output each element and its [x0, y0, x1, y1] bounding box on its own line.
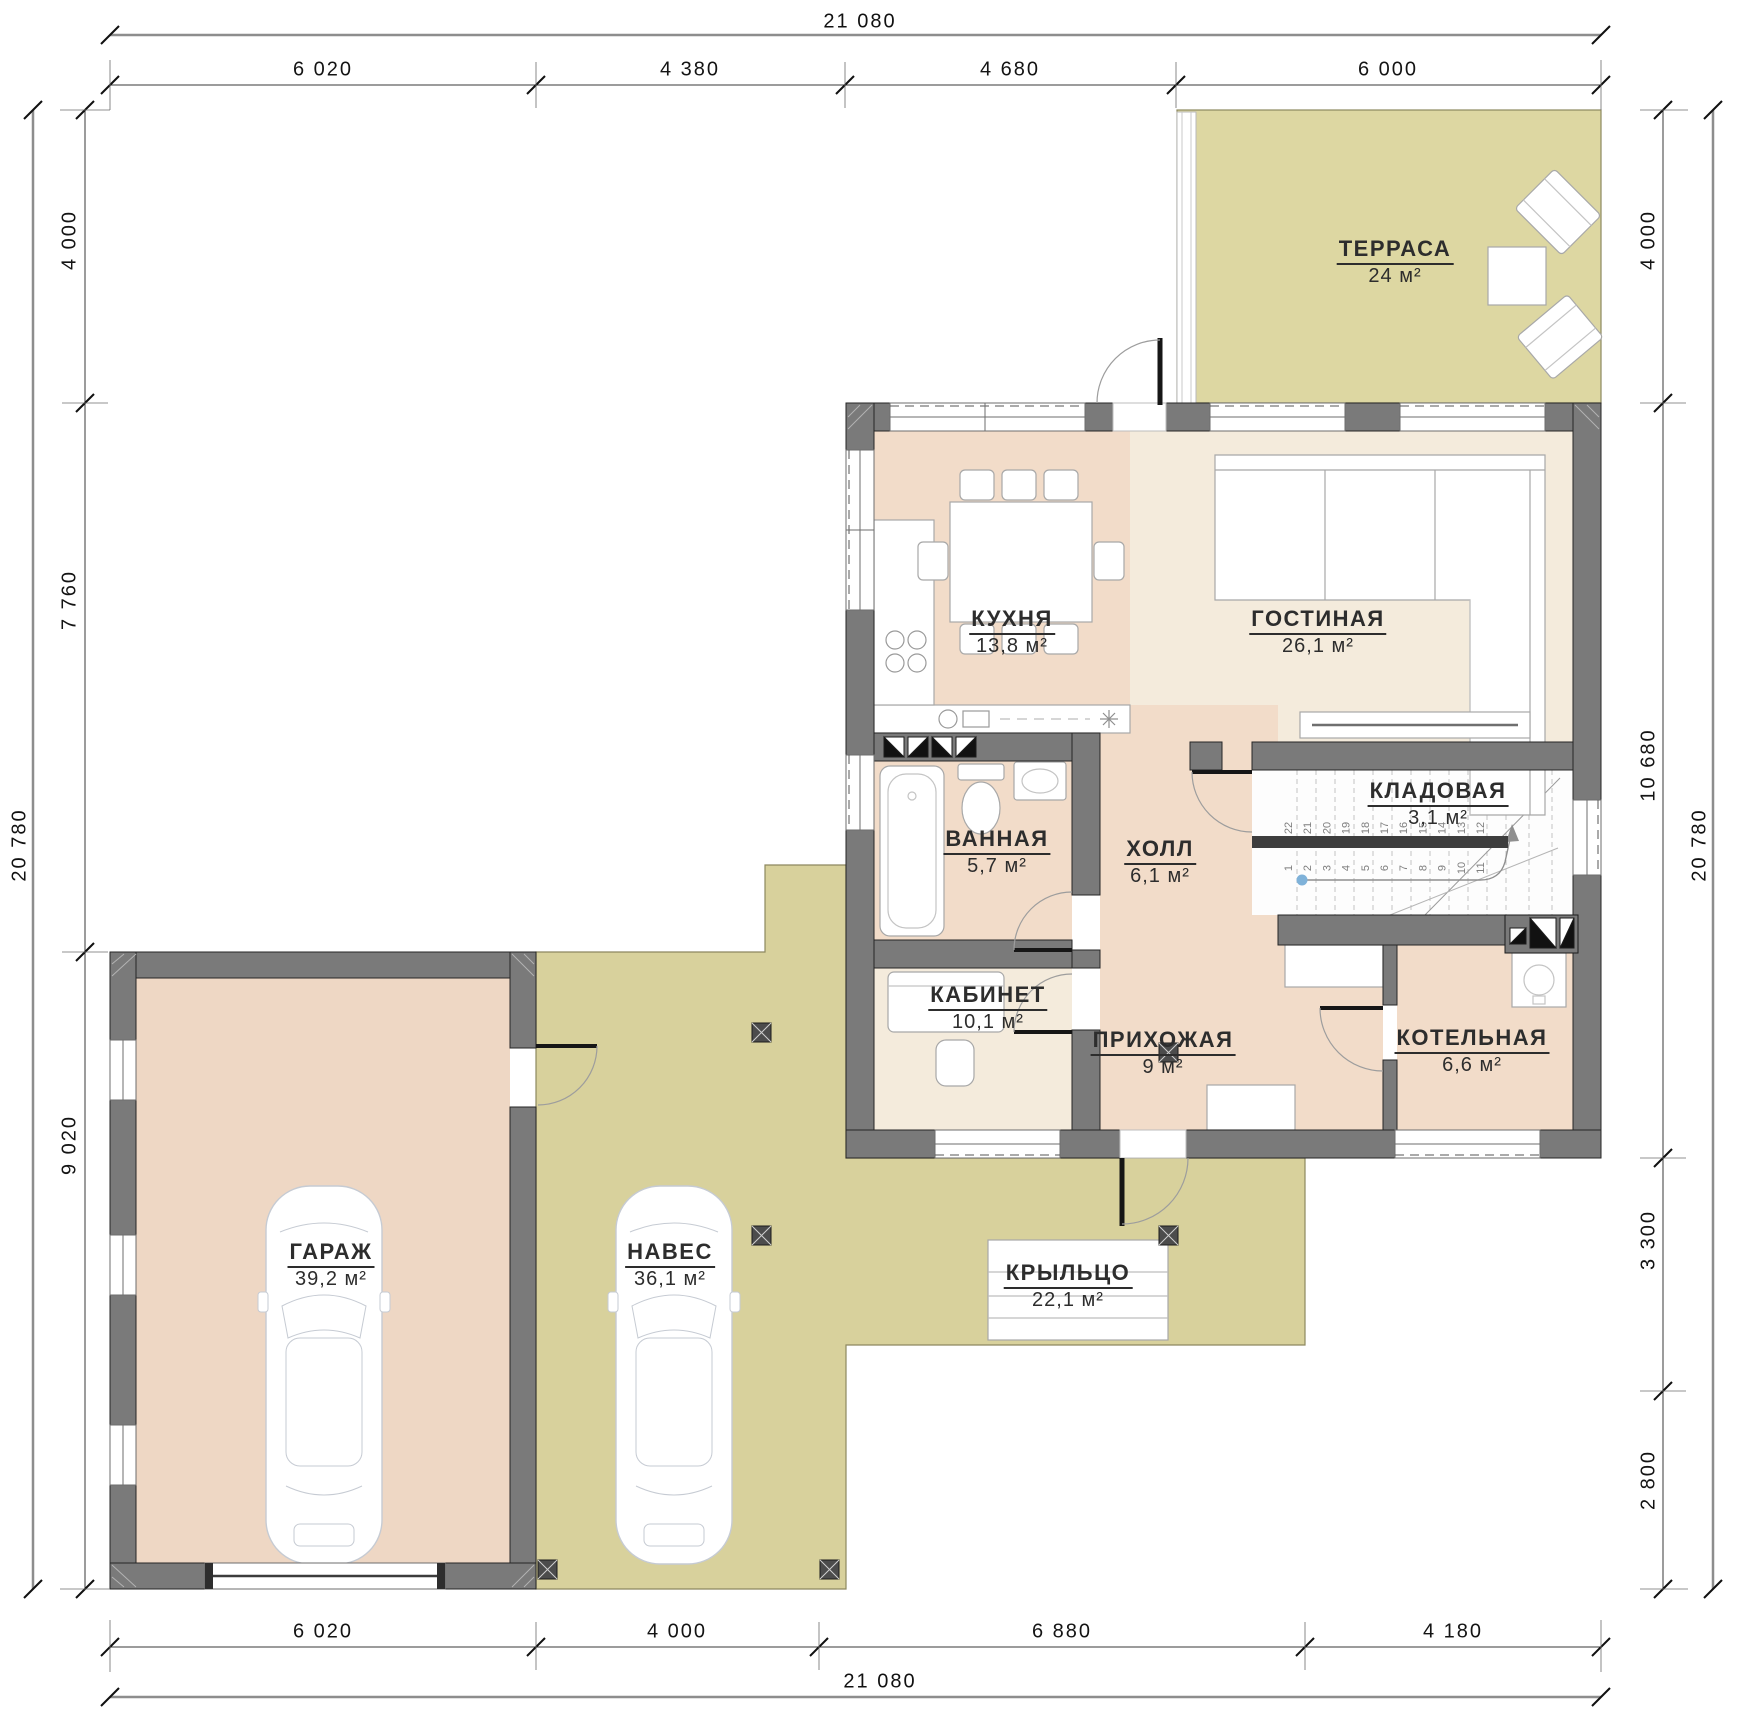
bathtub	[880, 766, 944, 936]
dim-bottom-total: 21 080	[843, 1671, 916, 1694]
boiler-unit	[1512, 953, 1566, 1007]
dim-top-seg-2: 4 380	[660, 59, 720, 82]
svg-text:5: 5	[1360, 865, 1372, 871]
terrace-table	[1488, 247, 1546, 305]
office-chair	[936, 1040, 974, 1086]
dim-top-seg-3: 4 680	[980, 59, 1040, 82]
dim-bottom-seg-2: 4 000	[647, 1621, 707, 1644]
tv-console	[1300, 712, 1530, 738]
svg-text:8: 8	[1417, 865, 1429, 871]
room-label-entry: ПРИХОЖАЯ 9 м²	[1091, 1027, 1236, 1079]
window-living-top-1	[1210, 403, 1345, 431]
svg-text:10: 10	[1456, 862, 1468, 874]
svg-text:3: 3	[1321, 865, 1333, 871]
window-living-top-2	[1400, 403, 1545, 431]
svg-text:4: 4	[1341, 865, 1353, 871]
dim-top-seg-1: 6 020	[293, 59, 353, 82]
entry-closet-bottom	[1207, 1085, 1295, 1130]
svg-text:21: 21	[1302, 822, 1314, 834]
window-office-bottom	[935, 1130, 1060, 1158]
window-boiler-bottom	[1395, 1130, 1540, 1158]
dim-left-seg-1: 4 000	[59, 210, 82, 270]
room-label-carport: НАВЕС 36,1 м²	[625, 1239, 715, 1291]
room-label-porch: КРЫЛЬЦО 22,1 м²	[1004, 1260, 1133, 1312]
svg-text:6: 6	[1379, 865, 1391, 871]
dim-bottom-seg-1: 6 020	[293, 1621, 353, 1644]
dim-right-seg-3: 3 300	[1638, 1210, 1661, 1270]
dining-table	[950, 502, 1092, 622]
room-label-bathroom: ВАННАЯ 5,7 м²	[943, 826, 1050, 878]
dim-top-total: 21 080	[823, 11, 896, 34]
floor-plan-drawing: 2221201918171615141312 1234567891011	[0, 0, 1748, 1728]
room-label-boiler: КОТЕЛЬНАЯ 6,6 м²	[1395, 1025, 1550, 1077]
dim-right-total: 20 780	[1689, 808, 1712, 881]
window-storage-right	[1573, 800, 1601, 875]
room-label-kitchen: КУХНЯ 13,8 м²	[969, 606, 1055, 658]
svg-text:1: 1	[1283, 865, 1295, 871]
window-bathroom-left	[846, 755, 874, 830]
stair-start-marker	[1297, 875, 1308, 886]
dim-left-seg-3: 9 020	[59, 1115, 82, 1175]
room-label-living: ГОСТИНАЯ 26,1 м²	[1249, 606, 1386, 658]
floor-plan-sheet: 2221201918171615141312 1234567891011	[0, 0, 1748, 1728]
room-label-garage: ГАРАЖ 39,2 м²	[288, 1239, 375, 1291]
dim-right-seg-2: 10 680	[1638, 728, 1661, 801]
room-label-storage: КЛАДОВАЯ 3,1 м²	[1368, 778, 1509, 830]
dim-left-total: 20 780	[9, 808, 32, 881]
svg-text:22: 22	[1283, 822, 1295, 834]
window-garage-left-2	[110, 1235, 136, 1295]
svg-text:20: 20	[1321, 822, 1333, 834]
svg-text:7: 7	[1398, 865, 1410, 871]
dim-right-seg-4: 2 800	[1638, 1450, 1661, 1510]
window-garage-left-1	[110, 1040, 136, 1100]
svg-text:19: 19	[1341, 822, 1353, 834]
dim-bottom-seg-4: 4 180	[1423, 1621, 1483, 1644]
window-kitchen-top	[890, 403, 1085, 431]
svg-text:2: 2	[1302, 865, 1314, 871]
svg-text:9: 9	[1437, 865, 1449, 871]
window-kitchen-left	[846, 450, 874, 610]
room-label-terrace: ТЕРРАСА 24 м²	[1337, 236, 1454, 288]
garage-gate	[205, 1563, 445, 1589]
bath-sink-icon	[1014, 762, 1066, 800]
dim-bottom-seg-3: 6 880	[1032, 1621, 1092, 1644]
window-garage-left-3	[110, 1425, 136, 1485]
svg-text:11: 11	[1475, 862, 1487, 873]
room-label-hall: ХОЛЛ 6,1 м²	[1124, 836, 1196, 888]
room-label-office: КАБИНЕТ 10,1 м²	[928, 982, 1047, 1034]
entry-closet-top	[1285, 945, 1383, 987]
dim-left-seg-2: 7 760	[59, 570, 82, 630]
dim-top-seg-4: 6 000	[1358, 59, 1418, 82]
dim-right-seg-1: 4 000	[1638, 210, 1661, 270]
